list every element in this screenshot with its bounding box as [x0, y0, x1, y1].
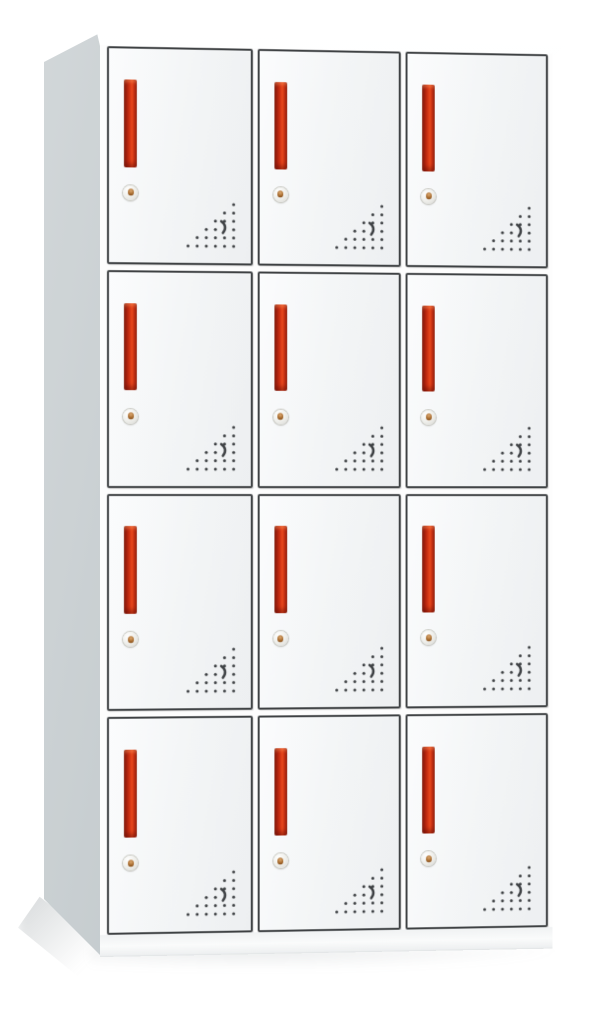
keyhole-lock-icon	[421, 851, 436, 866]
door-handle-icon	[124, 750, 137, 838]
keyhole-lock-icon	[123, 409, 138, 424]
vent-holes-icon	[482, 863, 532, 913]
locker-door-r4c3	[406, 713, 548, 929]
keyhole-lock-icon	[421, 410, 436, 425]
door-handle-icon	[274, 526, 287, 613]
vent-holes-icon	[335, 202, 386, 252]
locker-door-r2c2	[257, 271, 401, 487]
door-handle-icon	[124, 526, 137, 614]
keyhole-lock-icon	[273, 409, 288, 424]
cabinet-front-face	[100, 45, 553, 957]
vent-holes-icon	[185, 645, 236, 695]
door-handle-icon	[422, 85, 435, 172]
keyhole-lock-icon	[421, 630, 436, 645]
locker-door-r2c3	[406, 273, 548, 488]
keyhole-lock-icon	[123, 855, 138, 870]
locker-door-r2c1	[107, 270, 252, 488]
keyhole-lock-icon	[273, 187, 288, 202]
keyhole-lock-icon	[123, 632, 138, 647]
door-handle-icon	[422, 526, 435, 612]
door-handle-icon	[274, 304, 287, 391]
locker-door-r1c3	[406, 52, 548, 268]
keyhole-lock-icon	[123, 185, 138, 200]
door-grid	[107, 46, 548, 935]
locker-door-r1c1	[107, 46, 252, 265]
locker-door-r3c1	[107, 494, 252, 712]
vent-holes-icon	[185, 423, 236, 473]
vent-holes-icon	[482, 203, 532, 253]
vent-holes-icon	[335, 866, 386, 916]
locker-product-image	[0, 0, 605, 1009]
vent-holes-icon	[185, 868, 236, 919]
locker-door-r1c2	[257, 49, 401, 267]
door-handle-icon	[422, 305, 435, 392]
door-handle-icon	[124, 79, 137, 167]
locker-door-r4c1	[107, 716, 252, 935]
keyhole-lock-icon	[421, 189, 436, 204]
keyhole-lock-icon	[273, 853, 288, 868]
vent-holes-icon	[335, 645, 386, 695]
locker-door-r3c3	[406, 494, 548, 709]
vent-holes-icon	[335, 423, 386, 473]
door-handle-icon	[274, 82, 287, 169]
locker-door-r3c2	[257, 494, 401, 710]
vent-holes-icon	[482, 644, 532, 694]
vent-holes-icon	[482, 424, 532, 473]
door-handle-icon	[422, 747, 435, 834]
door-handle-icon	[274, 748, 287, 835]
door-handle-icon	[124, 303, 137, 391]
keyhole-lock-icon	[273, 631, 288, 646]
vent-holes-icon	[185, 200, 236, 250]
locker-door-r4c2	[257, 715, 401, 933]
